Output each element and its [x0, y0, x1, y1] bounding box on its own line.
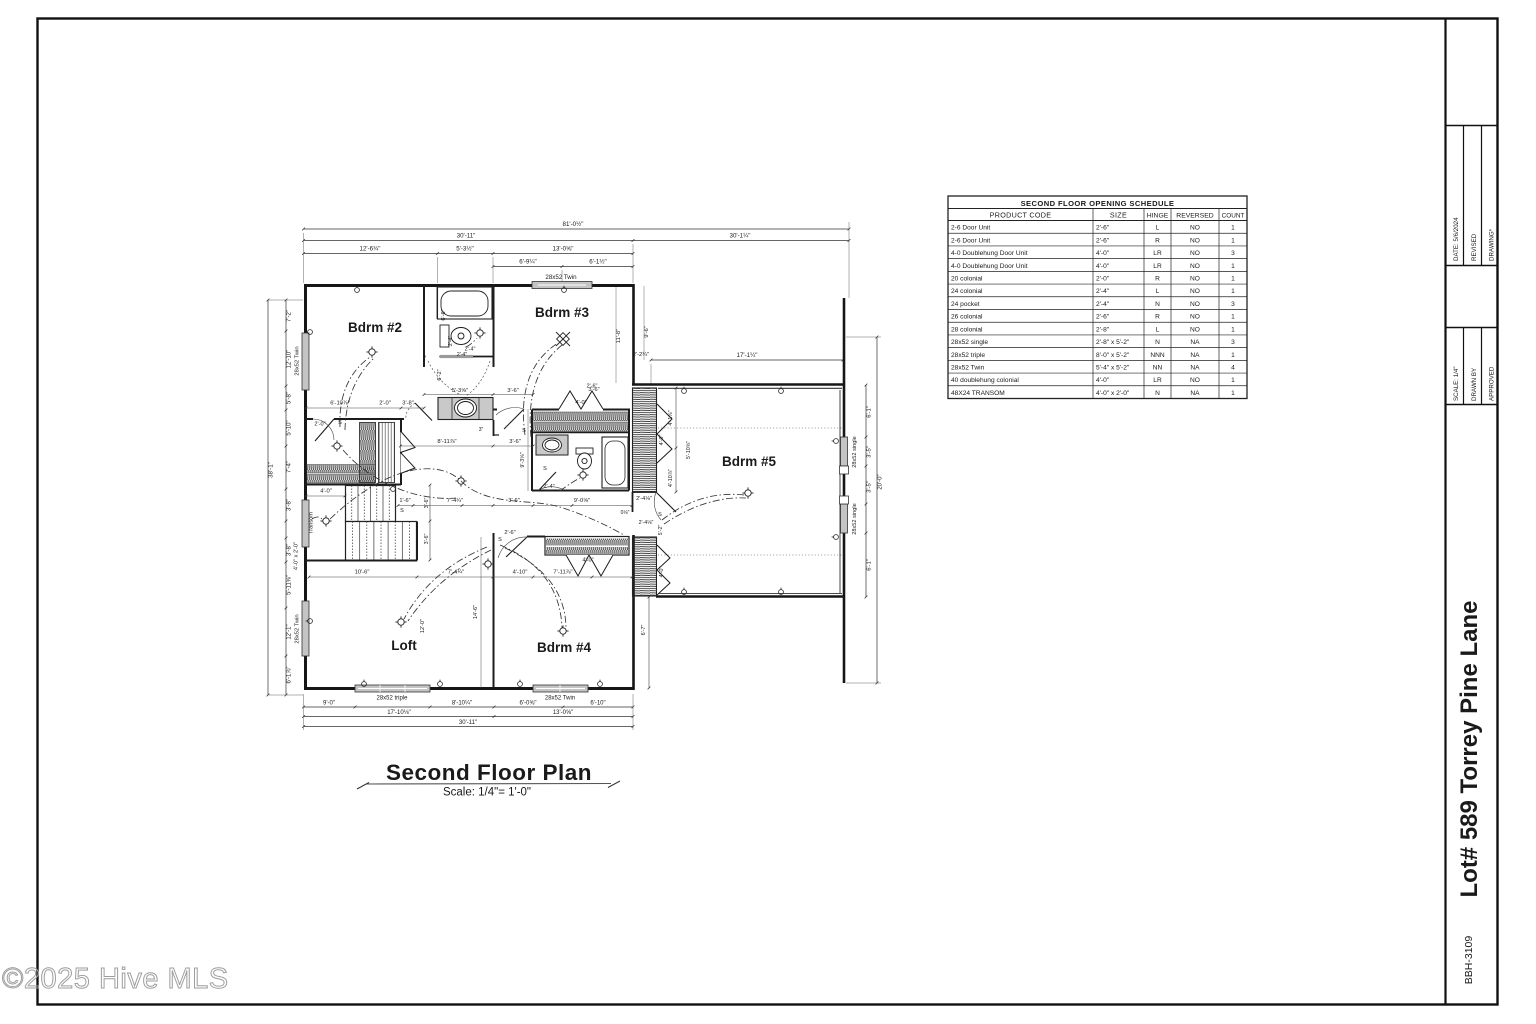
svg-text:REVERSED: REVERSED: [1176, 213, 1213, 220]
svg-text:2'-4⅛": 2'-4⅛": [636, 496, 652, 502]
svg-text:5'-11⅝": 5'-11⅝": [287, 575, 293, 595]
svg-text:Loft: Loft: [391, 638, 417, 653]
svg-text:24 pocket: 24 pocket: [951, 301, 980, 308]
svg-text:Lot# 589 Torrey Pine Lane: Lot# 589 Torrey Pine Lane: [1456, 601, 1483, 898]
svg-text:N: N: [1155, 339, 1160, 346]
svg-text:28x52 Twin: 28x52 Twin: [295, 614, 301, 643]
svg-text:2'-4⅛": 2'-4⅛": [639, 520, 654, 526]
svg-text:2'-6": 2'-6": [587, 384, 598, 390]
svg-text:6'-10⅞": 6'-10⅞": [330, 401, 350, 407]
svg-text:COUNT: COUNT: [1222, 213, 1245, 220]
svg-text:SECOND FLOOR OPENING SCHEDULE: SECOND FLOOR OPENING SCHEDULE: [1021, 199, 1175, 208]
svg-text:1: 1: [1231, 377, 1235, 384]
svg-text:3'-8": 3'-8": [287, 499, 293, 511]
svg-text:L: L: [1156, 326, 1160, 333]
svg-text:28x52 single: 28x52 single: [852, 436, 858, 467]
svg-text:2'-2¼": 2'-2¼": [633, 352, 649, 358]
svg-text:3: 3: [1231, 301, 1235, 308]
svg-text:6'-1": 6'-1": [867, 406, 873, 418]
svg-text:NO: NO: [1190, 263, 1200, 270]
svg-text:28x52 Twin: 28x52 Twin: [951, 364, 985, 371]
svg-text:NA: NA: [1190, 339, 1200, 346]
svg-text:5'-10": 5'-10": [287, 420, 293, 435]
svg-text:3": 3": [479, 427, 484, 433]
svg-text:2'-8" x 5'-2": 2'-8" x 5'-2": [1096, 339, 1130, 346]
svg-text:17'-1¼": 17'-1¼": [737, 352, 758, 359]
svg-text:NO: NO: [1190, 314, 1200, 321]
svg-text:4'-0": 4'-0": [1096, 263, 1110, 270]
svg-text:13'-0⅝": 13'-0⅝": [553, 710, 573, 716]
svg-text:1: 1: [1231, 288, 1235, 295]
svg-text:L: L: [1156, 225, 1160, 232]
svg-text:R: R: [1155, 314, 1160, 321]
svg-text:4'-0": 4'-0": [582, 558, 593, 564]
svg-text:8'-10¼": 8'-10¼": [452, 700, 472, 706]
svg-text:©2025 Hive MLS: ©2025 Hive MLS: [2, 963, 229, 995]
svg-text:7'-4¼": 7'-4¼": [447, 498, 463, 504]
svg-text:DATE: 5/6/2024: DATE: 5/6/2024: [1453, 217, 1460, 261]
svg-text:SCALE: 1/4": SCALE: 1/4": [1453, 366, 1460, 401]
svg-text:26 colonial: 26 colonial: [951, 314, 983, 321]
svg-text:R: R: [1155, 237, 1160, 244]
svg-text:81'-0½": 81'-0½": [563, 221, 584, 228]
svg-text:4-0 Doublehung Door Unit: 4-0 Doublehung Door Unit: [951, 250, 1028, 257]
svg-text:1: 1: [1231, 275, 1235, 282]
svg-text:28 colonial: 28 colonial: [951, 326, 983, 333]
svg-text:5'-2": 5'-2": [658, 525, 664, 536]
svg-text:4'-10": 4'-10": [513, 570, 528, 576]
svg-text:2'-4": 2'-4": [1096, 288, 1110, 295]
svg-text:13'-0⅝": 13'-0⅝": [553, 246, 574, 253]
svg-text:REVISED: REVISED: [1471, 233, 1478, 261]
svg-text:NO: NO: [1190, 326, 1200, 333]
svg-text:2'-6": 2'-6": [504, 530, 515, 536]
svg-text:NN: NN: [1153, 364, 1163, 371]
svg-text:8'-11⅞": 8'-11⅞": [437, 439, 456, 445]
svg-text:Bdrm #2: Bdrm #2: [348, 320, 402, 335]
svg-text:NNN: NNN: [1150, 352, 1165, 359]
svg-text:1: 1: [1231, 314, 1235, 321]
svg-text:4'-0": 4'-0": [659, 435, 665, 446]
svg-text:Scale: 1/4"= 1'-0": Scale: 1/4"= 1'-0": [443, 787, 531, 799]
svg-text:NA: NA: [1190, 364, 1200, 371]
svg-text:3: 3: [1231, 250, 1235, 257]
svg-text:5'-10⅝": 5'-10⅝": [686, 441, 692, 459]
svg-text:4'-0" x 2'-0": 4'-0" x 2'-0": [1096, 390, 1130, 397]
svg-text:6'-2": 6'-2": [437, 369, 443, 380]
svg-text:7'-4": 7'-4": [287, 461, 293, 473]
svg-text:Second Floor Plan: Second Floor Plan: [386, 760, 592, 785]
svg-text:NO: NO: [1190, 237, 1200, 244]
svg-text:9'-0": 9'-0": [323, 700, 335, 706]
svg-text:S: S: [658, 512, 662, 518]
svg-text:4'-10⅞": 4'-10⅞": [668, 469, 674, 487]
svg-text:4'-0": 4'-0": [575, 400, 586, 406]
svg-text:Bdrm #4: Bdrm #4: [537, 640, 592, 655]
svg-text:6'-9¼": 6'-9¼": [519, 259, 536, 266]
svg-text:6'-7": 6'-7": [641, 625, 647, 636]
svg-text:5'-3½": 5'-3½": [456, 246, 473, 253]
svg-text:5'-4" x 5'-2": 5'-4" x 5'-2": [1096, 364, 1130, 371]
svg-text:1: 1: [1231, 237, 1235, 244]
svg-text:2'-6": 2'-6": [1096, 314, 1110, 321]
svg-text:R: R: [1155, 275, 1160, 282]
svg-text:NO: NO: [1190, 377, 1200, 384]
svg-text:17'-10⅛": 17'-10⅛": [387, 710, 411, 716]
svg-text:2-6 Door Unit: 2-6 Door Unit: [951, 225, 990, 232]
svg-text:0⅛": 0⅛": [621, 510, 630, 516]
svg-text:BBH-3109: BBH-3109: [1463, 936, 1475, 985]
svg-text:2'-4": 2'-4": [448, 336, 454, 346]
svg-text:6'-1": 6'-1": [867, 559, 873, 571]
svg-text:SIZE: SIZE: [1110, 211, 1127, 220]
svg-text:9'-6": 9'-6": [644, 326, 650, 338]
svg-text:3'-6": 3'-6": [507, 388, 519, 394]
svg-text:2'-4": 2'-4": [543, 484, 554, 490]
svg-text:LR: LR: [1153, 377, 1162, 384]
svg-text:4: 4: [1231, 364, 1235, 371]
svg-text:12'-1": 12'-1": [287, 624, 293, 639]
svg-text:Bdrm #5: Bdrm #5: [722, 454, 777, 469]
svg-text:S: S: [543, 466, 547, 472]
svg-text:28x52 Twin: 28x52 Twin: [295, 346, 301, 375]
svg-text:LR: LR: [1153, 263, 1162, 270]
svg-text:NO: NO: [1190, 288, 1200, 295]
svg-text:3'-6": 3'-6": [424, 498, 430, 509]
svg-text:4'-1⅞": 4'-1⅞": [668, 410, 674, 425]
svg-text:1: 1: [1231, 225, 1235, 232]
svg-text:NO: NO: [1190, 275, 1200, 282]
svg-text:4'-0": 4'-0": [659, 567, 665, 578]
svg-text:4'-0": 4'-0": [320, 489, 332, 495]
svg-text:5'-8": 5'-8": [287, 392, 293, 404]
svg-text:NO: NO: [1190, 301, 1200, 308]
svg-text:12'-0": 12'-0": [420, 619, 426, 633]
svg-text:NA: NA: [1190, 390, 1200, 397]
svg-text:2-6 Door Unit: 2-6 Door Unit: [951, 237, 990, 244]
svg-text:28x52 single: 28x52 single: [852, 503, 858, 534]
svg-text:48X24 TRANSOM: 48X24 TRANSOM: [951, 390, 1005, 397]
svg-text:12'-10": 12'-10": [287, 350, 293, 369]
svg-text:N: N: [1155, 301, 1160, 308]
svg-text:12'-6¾": 12'-6¾": [360, 246, 381, 253]
svg-text:DRAWING*: DRAWING*: [1489, 228, 1496, 261]
svg-text:2'-0": 2'-0": [1096, 275, 1110, 282]
svg-text:S: S: [498, 537, 502, 543]
svg-text:20'-0": 20'-0": [878, 474, 884, 489]
svg-text:3'-6": 3'-6": [424, 534, 430, 545]
svg-text:3'-8": 3'-8": [402, 401, 414, 407]
svg-text:28x52 triple: 28x52 triple: [951, 352, 985, 359]
svg-text:1: 1: [1231, 326, 1235, 333]
svg-text:5'-3⅝": 5'-3⅝": [452, 388, 468, 394]
svg-text:7'-11⅞": 7'-11⅞": [553, 570, 572, 576]
svg-text:6'-1⅞": 6'-1⅞": [287, 667, 293, 684]
svg-text:HINGE: HINGE: [1147, 213, 1169, 220]
svg-text:3'-5": 3'-5": [867, 446, 873, 458]
svg-text:30'-11": 30'-11": [457, 233, 476, 240]
svg-text:2'-0": 2'-0": [379, 401, 391, 407]
svg-text:NO: NO: [1190, 250, 1200, 257]
svg-text:11'-8": 11'-8": [616, 329, 622, 343]
svg-text:2'-0": 2'-0": [314, 422, 325, 428]
svg-text:14'-6": 14'-6": [473, 605, 479, 619]
svg-text:1: 1: [1231, 352, 1235, 359]
svg-text:6'-6": 6'-6": [441, 309, 447, 320]
svg-text:3'-8": 3'-8": [287, 544, 293, 556]
svg-text:9'-0⅝": 9'-0⅝": [574, 498, 590, 504]
svg-text:28x52 Twin: 28x52 Twin: [545, 274, 577, 281]
svg-text:7'-4¼": 7'-4¼": [448, 570, 464, 576]
svg-text:2'-6": 2'-6": [1096, 225, 1110, 232]
svg-text:6'-10": 6'-10": [590, 700, 605, 706]
svg-text:30'-1¼": 30'-1¼": [730, 233, 751, 240]
svg-text:4'-0": 4'-0": [1096, 250, 1110, 257]
svg-text:4'-0": 4'-0": [1096, 377, 1110, 384]
svg-text:9'-3⅝": 9'-3⅝": [520, 452, 526, 467]
svg-text:4'-0" x 2'-0": 4'-0" x 2'-0": [294, 542, 300, 570]
svg-text:28x52 single: 28x52 single: [951, 339, 988, 346]
svg-text:4-0 Doublehung Door Unit: 4-0 Doublehung Door Unit: [951, 263, 1028, 270]
svg-text:20 colonial: 20 colonial: [951, 275, 983, 282]
svg-text:24 colonial: 24 colonial: [951, 288, 983, 295]
svg-text:30'-11": 30'-11": [459, 720, 477, 726]
svg-text:APPROVED: APPROVED: [1489, 366, 1496, 401]
svg-text:NO: NO: [1190, 225, 1200, 232]
svg-text:8'-0" x 5'-2": 8'-0" x 5'-2": [1096, 352, 1130, 359]
svg-text:10'-6": 10'-6": [355, 570, 370, 576]
svg-text:3: 3: [1231, 339, 1235, 346]
svg-text:1: 1: [1231, 390, 1235, 397]
svg-text:7'-2": 7'-2": [287, 310, 293, 322]
svg-text:N: N: [1155, 390, 1160, 397]
svg-text:6'-1½": 6'-1½": [589, 259, 606, 266]
svg-text:1: 1: [1231, 263, 1235, 270]
svg-text:2'-4": 2'-4": [1096, 301, 1110, 308]
svg-text:2'-6": 2'-6": [1096, 237, 1110, 244]
svg-text:3'-5": 3'-5": [867, 481, 873, 493]
svg-text:S: S: [400, 508, 404, 514]
svg-text:LR: LR: [1153, 250, 1162, 257]
svg-text:3'-6": 3'-6": [509, 439, 521, 445]
svg-text:1'-6": 1'-6": [399, 498, 410, 504]
svg-text:40 doublehung colonial: 40 doublehung colonial: [951, 377, 1019, 384]
svg-text:NA: NA: [1190, 352, 1200, 359]
svg-text:28x52 triple: 28x52 triple: [376, 696, 408, 702]
svg-text:PRODUCT CODE: PRODUCT CODE: [990, 211, 1052, 220]
svg-text:2'-8": 2'-8": [1096, 326, 1110, 333]
svg-text:L: L: [1156, 288, 1160, 295]
svg-text:DRAWN BY: DRAWN BY: [1471, 368, 1478, 401]
svg-text:Bdrm #3: Bdrm #3: [535, 305, 590, 320]
svg-text:28x52 Twin: 28x52 Twin: [545, 696, 575, 702]
svg-text:6'-0⅝": 6'-0⅝": [520, 700, 537, 706]
svg-text:38'-1": 38'-1": [268, 462, 275, 478]
svg-text:2'-4": 2'-4": [457, 352, 467, 358]
